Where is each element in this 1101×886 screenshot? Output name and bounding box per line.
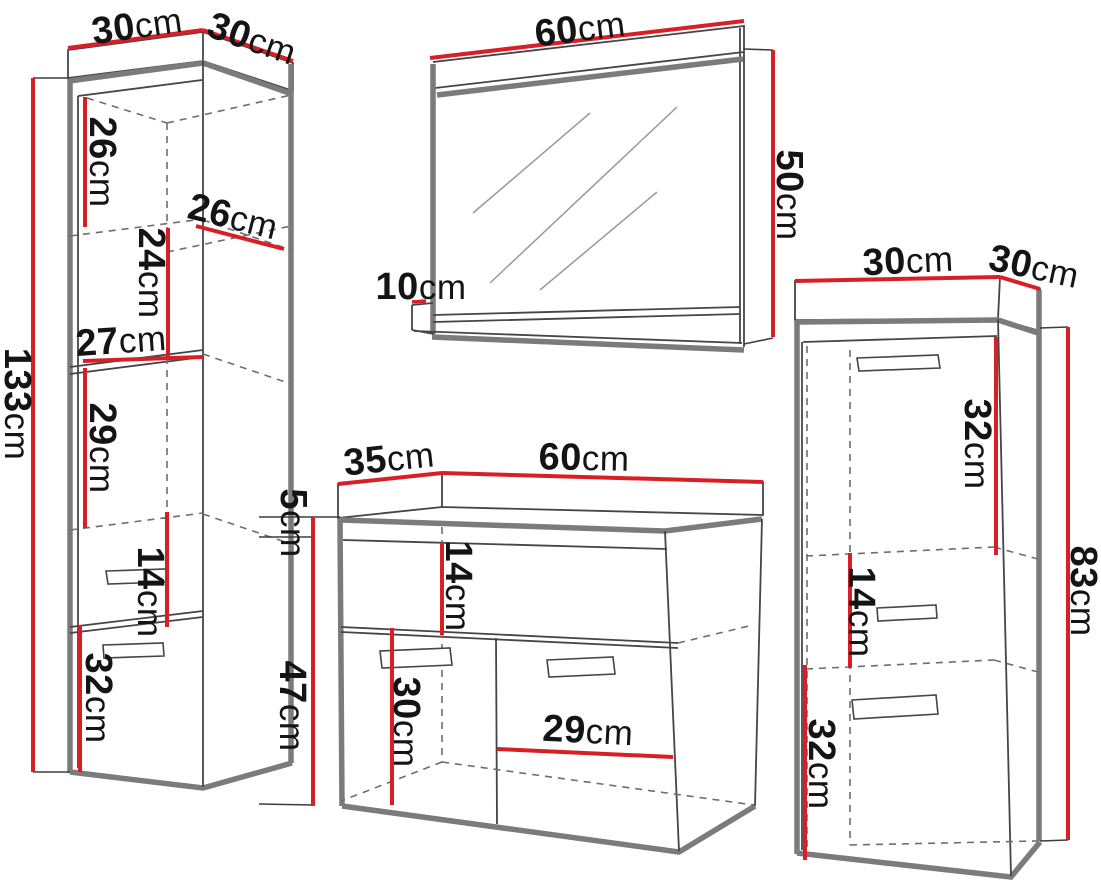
- dim-unit: cm: [132, 271, 171, 319]
- dim-value: 14: [129, 547, 171, 590]
- dim-value: 30: [385, 677, 427, 720]
- tall-cabinet-interior-top-edge: [78, 80, 202, 96]
- dim-unit: cm: [585, 711, 635, 752]
- dim-label-tall-width-top: 30cm: [89, 0, 185, 53]
- dim-unit: cm: [79, 696, 118, 744]
- dim-unit: cm: [0, 413, 37, 461]
- dim-label-tall-depth-top: 30cm: [202, 4, 302, 73]
- dim-label-tall-height-total: 133cm: [0, 348, 38, 461]
- side-cabinet-bottom-door-handle: [852, 695, 938, 719]
- dim-label-tall-second-shelf: 24cm: [130, 228, 172, 319]
- dim-label-mirror-shelf-depth: 10cm: [376, 266, 467, 308]
- dim-unit: cm: [439, 584, 478, 632]
- dim-label-mirror-height: 50cm: [768, 150, 810, 241]
- dim-unit: cm: [387, 720, 426, 768]
- vanity-bottom-edge: [342, 806, 755, 852]
- dim-value: 5: [272, 488, 314, 510]
- dim-value: 26: [81, 117, 123, 160]
- mirror: 60cm 50cm 10cm: [376, 3, 810, 350]
- vanity-left-edge: [340, 519, 342, 806]
- side-cabinet-front-corner-edge: [998, 319, 1011, 876]
- dim-label-vanity-body-height: 47cm: [271, 661, 313, 752]
- dim-label-side-drawer: 14cm: [840, 567, 882, 658]
- vanity-door-divider: [496, 638, 497, 824]
- dim-label-side-height-total: 83cm: [1062, 546, 1101, 637]
- furniture-dimension-diagram: 30cm 30cm 133cm 26cm 26cm 24cm 27cm 29cm…: [0, 0, 1101, 886]
- dim-unit: cm: [802, 762, 841, 810]
- dim-value: 32: [956, 399, 998, 442]
- tall-cabinet-height-ticks: [33, 78, 70, 772]
- dim-unit: cm: [581, 438, 629, 478]
- dim-label-vanity-door: 30cm: [385, 677, 427, 768]
- dim-value: 24: [130, 228, 172, 271]
- dim-value: 30: [89, 6, 138, 54]
- dim-label-vanity-width-top: 60cm: [538, 436, 630, 480]
- dim-unit: cm: [958, 442, 997, 490]
- mirror-bottom-edge: [432, 337, 744, 350]
- dim-label-tall-third-shelf: 29cm: [81, 403, 123, 494]
- vanity-drawer-top-edge: [343, 540, 667, 549]
- dim-unit: cm: [905, 239, 955, 280]
- dim-unit: cm: [132, 0, 185, 45]
- side-cabinet-top-door-handle: [857, 355, 940, 371]
- dim-value: 10: [376, 266, 419, 308]
- dim-unit: cm: [419, 268, 467, 307]
- side-cabinet-drawer-handle: [877, 605, 937, 621]
- tall-cabinet: 30cm 30cm 133cm 26cm 26cm 24cm 27cm 29cm…: [0, 0, 302, 788]
- vanity-right-door-handle: [547, 657, 615, 677]
- diagram-canvas: 30cm 30cm 133cm 26cm 26cm 24cm 27cm 29cm…: [0, 0, 1101, 886]
- dim-value: 83: [1062, 546, 1101, 589]
- dim-value: 29: [81, 403, 123, 446]
- dim-label-side-width-top: 30cm: [861, 238, 954, 285]
- dim-value: 30: [861, 240, 906, 284]
- mirror-frame-outline: [433, 26, 744, 347]
- side-cabinet-bottom-edge: [797, 842, 1040, 877]
- mirror-reflection-lines: [473, 107, 677, 290]
- dim-unit: cm: [842, 610, 881, 658]
- dim-label-tall-door: 32cm: [77, 653, 119, 744]
- dim-value: 14: [840, 567, 882, 610]
- dim-label-vanity-drawer: 14cm: [437, 541, 479, 632]
- dim-unit: cm: [274, 510, 313, 558]
- vanity-front-corner-edge: [665, 531, 679, 851]
- dim-unit: cm: [1064, 589, 1101, 637]
- dim-label-side-bottom-door: 32cm: [800, 719, 842, 810]
- tall-cabinet-bottom-edge: [70, 763, 292, 788]
- dim-value: 32: [77, 653, 119, 696]
- dim-value: 50: [768, 150, 810, 193]
- dim-label-tall-drawer: 14cm: [129, 547, 171, 638]
- side-cabinet: 30cm 30cm 32cm 14cm 32cm 83cm: [795, 237, 1101, 877]
- dim-value: 60: [532, 8, 580, 55]
- dim-unit: cm: [385, 435, 436, 479]
- dim-value: 47: [271, 661, 313, 704]
- side-cabinet-crown-shadow: [797, 320, 1038, 333]
- dim-unit: cm: [770, 193, 809, 241]
- mirror-top-shadow: [437, 59, 743, 95]
- dim-value: 133: [0, 348, 38, 413]
- dim-unit: cm: [226, 198, 282, 247]
- dim-value: 14: [437, 541, 479, 584]
- dim-unit: cm: [575, 4, 627, 49]
- dim-unit: cm: [83, 446, 122, 494]
- dim-label-tall-inner-width: 27cm: [74, 317, 168, 365]
- dim-label-mirror-width: 60cm: [532, 3, 627, 56]
- dim-value: 35: [342, 438, 389, 484]
- side-cabinet-door-top-edge: [803, 336, 997, 342]
- dim-value: 32: [800, 719, 842, 762]
- tall-cabinet-crown-shadow: [69, 63, 292, 94]
- dim-label-vanity-countertop: 5cm: [272, 488, 314, 557]
- dim-value: 60: [538, 436, 582, 479]
- dim-unit: cm: [117, 318, 167, 360]
- dim-label-tall-top-shelf: 26cm: [81, 117, 123, 208]
- dim-unit: cm: [131, 590, 170, 638]
- dim-label-side-top-door: 32cm: [956, 399, 998, 490]
- vanity-top-shadow: [341, 519, 762, 531]
- dim-value: 29: [541, 708, 586, 752]
- dim-unit: cm: [83, 160, 122, 208]
- dim-value: 27: [74, 320, 120, 365]
- mirror-height-ticks: [744, 49, 773, 344]
- dim-unit: cm: [273, 704, 312, 752]
- dim-label-vanity-inner-width: 29cm: [541, 708, 634, 755]
- vanity-cabinet: 35cm 60cm 5cm 47cm 14cm 30cm 29cm: [259, 433, 763, 852]
- vanity-side-back-edge: [755, 519, 762, 806]
